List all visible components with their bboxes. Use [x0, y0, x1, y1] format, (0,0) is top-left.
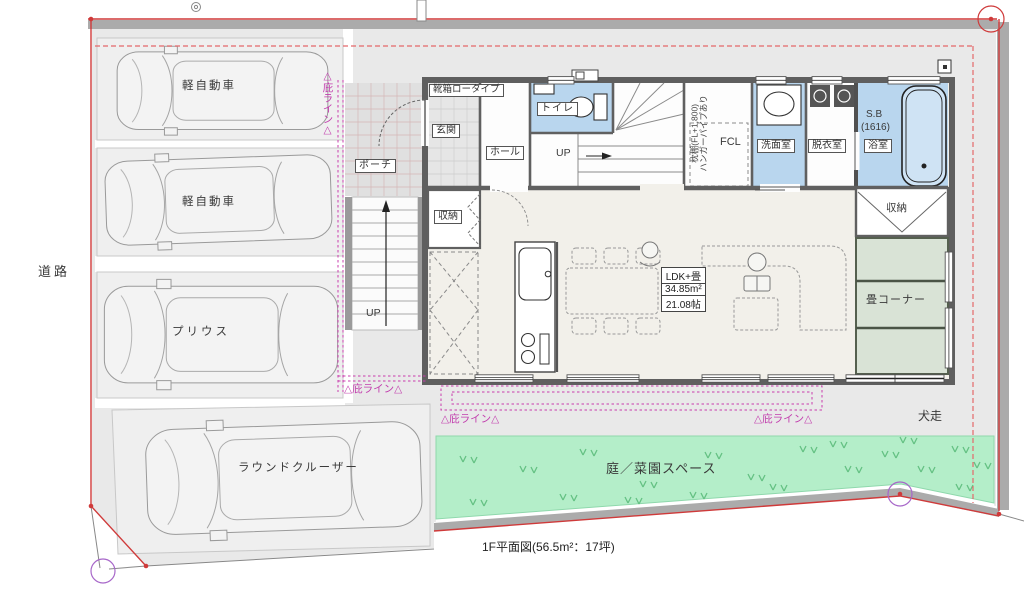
exterior-stairs — [345, 197, 426, 330]
ldk-area-box: LDK+畳 34.85m² 21.08帖 — [661, 267, 706, 312]
parking-space-4-label: ラウンドクルーザー — [238, 462, 359, 475]
floor-plan-page: 道路 軽自動車 軽自動車 プリウス ラウンドクルーザー △庇ライン△ △庇ライン… — [0, 0, 1024, 589]
closet-pipe-label: ハンガーパイプあり — [700, 78, 709, 188]
storage-right-label: 収納 — [886, 203, 907, 215]
bath-sb-label: S.B — [866, 109, 882, 120]
closet-shelf-note: 枕棚(FL+1,800) ハンガーパイプあり — [691, 78, 710, 188]
porch-label: ポーチ — [355, 159, 396, 173]
parking-space-2-label: 軽自動車 — [182, 196, 236, 209]
genkan-label: 玄関 — [432, 124, 460, 138]
bath-label: 浴室 — [864, 139, 892, 153]
dog-run-label: 犬走 — [918, 410, 942, 423]
porch — [345, 83, 425, 196]
garden-label: 庭／菜園スペース — [606, 462, 716, 476]
ldk-area-m2: 34.85m² — [662, 284, 705, 296]
bathtub-fixture — [902, 86, 946, 186]
eave-line-label-3: △庇ライン△ — [754, 414, 812, 426]
eave-line-label-1: △庇ライン△ — [344, 384, 402, 396]
vanity-fixture — [757, 85, 801, 125]
parking-space-1-label: 軽自動車 — [182, 80, 236, 93]
road-label: 道路 — [38, 265, 70, 279]
washroom-label: 洗面室 — [757, 139, 795, 153]
tatami-label: 畳コーナー — [866, 294, 926, 306]
plan-caption: 1F平面図(56.5m²：17坪) — [482, 541, 615, 554]
kitchen-counter — [515, 242, 557, 372]
eave-line-label-2: △庇ライン△ — [441, 414, 499, 426]
toilet-label: トイレ — [537, 102, 578, 116]
hall-label: ホール — [486, 146, 524, 160]
fcl-label: FCL — [720, 136, 741, 148]
ldk-area-jo: 21.08帖 — [662, 296, 705, 311]
bath-size-label: (1616) — [861, 122, 890, 133]
eave-line-label-vertical: △庇ライン△ — [321, 70, 333, 136]
ext-stairs-up-label: UP — [366, 308, 381, 320]
ldk-title: LDK+畳 — [662, 268, 705, 284]
parking-space-3-label: プリウス — [172, 326, 230, 339]
stairs-up-label: UP — [556, 148, 571, 160]
shoebox-label: 靴箱ロータイプ — [429, 84, 504, 97]
windows-right — [945, 252, 952, 368]
dressing-label: 脱衣室 — [808, 139, 846, 153]
storage-left-label: 収納 — [434, 210, 462, 224]
